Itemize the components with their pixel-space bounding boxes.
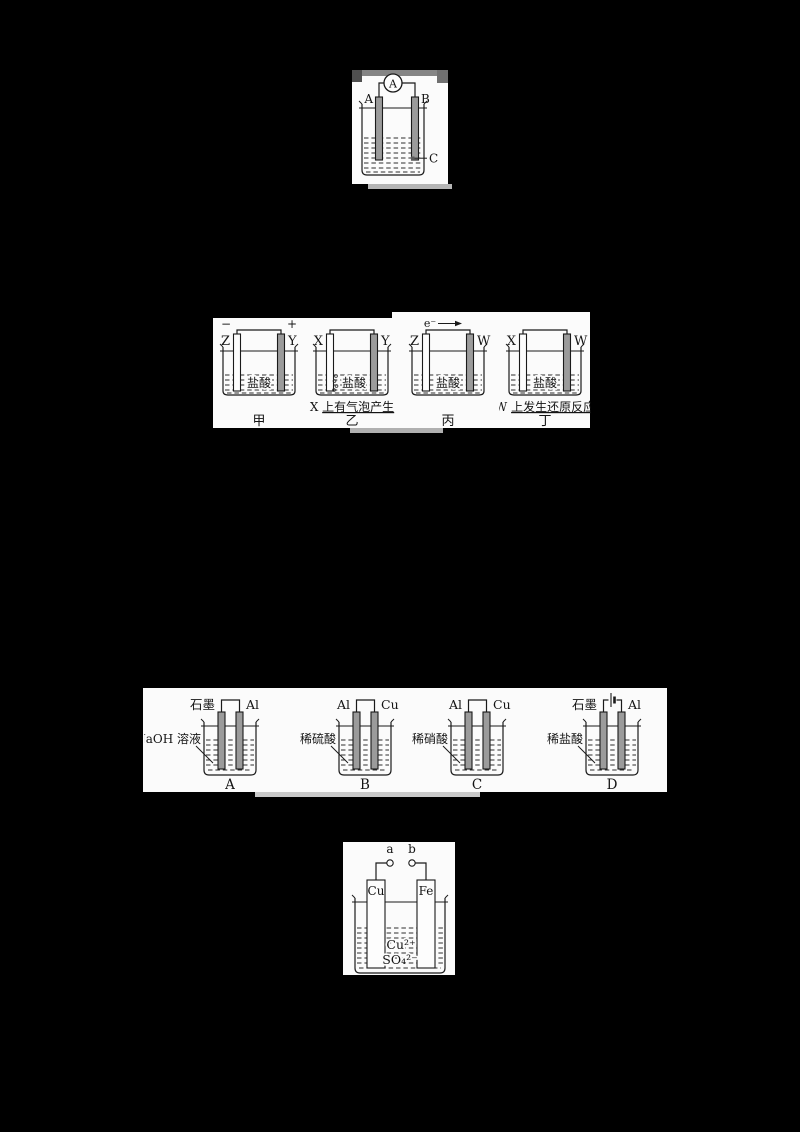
electrode-cu-bar: [371, 712, 378, 769]
electrode-z-label: Z: [221, 334, 230, 349]
electrode-y-label: Y: [287, 334, 297, 349]
caption: D: [607, 777, 618, 792]
electrode-x-bar: [327, 334, 334, 391]
figure1-svg: A A B C: [352, 70, 448, 184]
electrode-y-label: Y: [380, 334, 390, 349]
electrode-b-label: B: [421, 92, 430, 106]
scan-square-left: [352, 70, 362, 82]
beaker-spout-left: [583, 719, 586, 722]
electrode-right-label: Cu: [493, 697, 511, 712]
liquid-dashes: [588, 740, 636, 770]
beaker-spout-right: [445, 895, 448, 898]
cell-c: Al Cu 稀硝酸 C: [391, 688, 521, 792]
solution-label: 盐酸: [247, 375, 271, 390]
observation-note: X 上有气泡产生: [310, 399, 394, 414]
electrode-a-bar: [376, 97, 383, 160]
caption: 丙: [441, 414, 454, 428]
solution-label: 稀硫酸: [300, 731, 336, 746]
electrode-left-label: Al: [336, 697, 350, 712]
scan-strip: [368, 184, 452, 189]
minus-sign: −: [221, 318, 231, 331]
electrode-right-label: Al: [245, 697, 259, 712]
electrode-y-bar: [278, 334, 285, 391]
wire: [426, 330, 470, 336]
beaker-outline: [204, 722, 256, 775]
note-underlined: 上有气泡产生: [322, 399, 394, 414]
observation-note: W 上发生还原反应: [499, 399, 591, 414]
beaker-spout-left: [448, 719, 451, 722]
electrode-w-label: W: [574, 334, 588, 349]
scan-strip: [350, 428, 443, 433]
caption: A: [224, 777, 235, 792]
electrode-al-bar: [465, 712, 472, 769]
electrode-left-label: Al: [448, 697, 462, 712]
terminal-a-circle: [387, 860, 393, 866]
electrode-al-bar: [618, 712, 625, 769]
solution-label: 稀盐酸: [547, 731, 583, 746]
electrode-graphite-bar: [218, 712, 225, 769]
wire-right: [617, 700, 622, 713]
electrode-x-label: X: [314, 334, 324, 349]
wire-right: [402, 83, 415, 97]
electrode-right-label: Al: [627, 697, 641, 712]
scan-square-right: [437, 70, 448, 83]
scan-strip: [255, 792, 480, 797]
wire: [469, 700, 487, 713]
cell-b: Al Cu 稀硫酸 B: [279, 688, 409, 792]
caption: C: [472, 777, 482, 792]
worksheet-page: { "colors": { "background": "#000000", "…: [0, 0, 800, 1132]
figure-four-cells-abcd: 石墨 Al NaOH 溶液 A Al Cu 稀硫酸 B: [143, 688, 667, 792]
beaker-spout-right: [256, 719, 259, 722]
terminal-b-circle: [409, 860, 415, 866]
cation-label: Cu²⁺: [386, 937, 415, 952]
fe-plate-label: Fe: [419, 884, 434, 898]
cell-d: 石墨 Al 稀盐酸 D: [526, 688, 656, 792]
wire-left: [376, 863, 387, 880]
liquid-dashes: [206, 740, 254, 770]
electrode-w-label: W: [477, 334, 491, 349]
cell-jia: − + Z Y 盐酸 甲: [213, 318, 305, 428]
anion-label: SO₄²⁻: [382, 952, 417, 967]
beaker-outline: [339, 722, 391, 775]
terminal-a-label: a: [386, 842, 393, 856]
electrode-a-label: A: [363, 92, 373, 106]
scan-band: [352, 70, 448, 76]
note-prefix: X: [310, 400, 322, 414]
wire: [237, 330, 281, 336]
cell-ding: X W 盐酸 W 上发生还原反应 丁: [499, 318, 591, 428]
figure-ammeter-cell: A A B C: [352, 70, 448, 184]
beaker-spout-left: [336, 719, 339, 722]
solution-label: 盐酸: [436, 375, 460, 390]
figure4-svg: a b Cu Fe Cu²⁺ SO₄²⁻: [343, 842, 455, 975]
battery-icon: [611, 693, 615, 707]
beaker-spout-right: [503, 719, 506, 722]
note-underlined: 上发生还原反应: [511, 399, 591, 414]
electrode-left-label: 石墨: [190, 697, 215, 712]
electrode-w-bar: [564, 334, 571, 391]
solution-label: 稀硝酸: [412, 731, 448, 746]
wire: [357, 700, 375, 713]
terminal-b-label: b: [408, 842, 416, 856]
plus-sign: +: [287, 318, 297, 331]
electrode-x-bar: [520, 334, 527, 391]
wire-right: [415, 863, 426, 880]
beaker-spout-left: [201, 719, 204, 722]
solution-label: NaOH 溶液: [144, 731, 201, 746]
cell-bing: e⁻ Z W 盐酸 丙: [402, 318, 494, 428]
electrode-cu-bar: [483, 712, 490, 769]
pointer-dot: [411, 157, 415, 161]
electrode-al-bar: [353, 712, 360, 769]
wire: [330, 330, 374, 336]
electrode-w-bar: [467, 334, 474, 391]
cu-plate-label: Cu: [368, 884, 385, 898]
wire-left: [604, 700, 609, 713]
cell-a: 石墨 Al NaOH 溶液 A: [144, 688, 274, 792]
electrode-b-bar: [412, 97, 419, 160]
electrode-y-bar: [371, 334, 378, 391]
caption: 丁: [538, 414, 551, 428]
wire-left: [379, 83, 384, 97]
liquid-dashes: [453, 740, 501, 770]
figure-cu-fe-cell: a b Cu Fe Cu²⁺ SO₄²⁻: [343, 842, 455, 975]
caption: B: [360, 777, 370, 792]
caption: 乙: [345, 414, 358, 428]
ammeter-label: A: [388, 78, 398, 91]
electrode-z-bar: [423, 334, 430, 391]
electron-flow-label: e⁻: [424, 318, 437, 330]
solution-label: 盐酸: [533, 375, 557, 390]
figure-four-beakers: − + Z Y 盐酸 甲: [213, 318, 590, 428]
solution-c-label: C: [429, 152, 438, 166]
cell-yi: X Y 盐酸 X 上有气泡产生 乙: [306, 318, 398, 428]
caption: 甲: [252, 414, 265, 428]
electrode-al-bar: [236, 712, 243, 769]
electron-arrow-icon: [438, 321, 462, 326]
beaker-outline: [451, 722, 503, 775]
note-prefix: W: [499, 400, 511, 414]
wire: [222, 700, 240, 713]
wire: [523, 330, 567, 336]
beaker-outline: [586, 722, 638, 775]
beaker-spout-left: [359, 101, 362, 104]
electrode-z-label: Z: [410, 334, 419, 349]
electrode-z-bar: [234, 334, 241, 391]
beaker-spout-left: [352, 895, 355, 898]
electrode-left-label: 石墨: [572, 697, 597, 712]
solution-label: 盐酸: [342, 375, 366, 390]
electrode-graphite-bar: [600, 712, 607, 769]
liquid-dashes: [341, 740, 389, 770]
electrode-x-label: X: [507, 334, 517, 349]
beaker-spout-right: [638, 719, 641, 722]
